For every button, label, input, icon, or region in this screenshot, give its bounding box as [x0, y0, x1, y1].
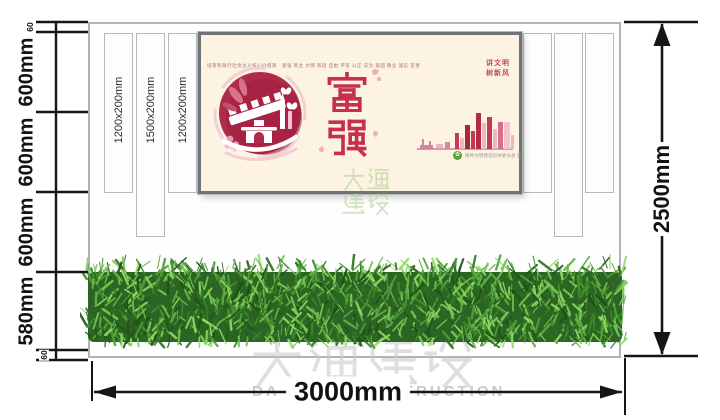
dim-label-580: 580mm	[16, 274, 39, 349]
city-skyline-graphic	[415, 101, 515, 153]
petal-accent-3	[318, 146, 325, 153]
dim-label-600-3: 600mm	[16, 195, 39, 270]
petal-accent-2	[377, 77, 382, 82]
credit-line: ✿ 精神文明建设指导委员会 宣	[453, 151, 521, 160]
strip-size-label-1: 1200x200mm	[113, 77, 125, 144]
credit-text: 精神文明建设指导委员会 宣	[465, 153, 521, 159]
slogan-line-1: 讲文明	[476, 59, 520, 69]
dim-label-height: 2500mm	[649, 142, 675, 236]
slogan-text: 讲文明 树新风	[476, 59, 520, 78]
dim-label-width: 3000mm	[286, 377, 410, 408]
dim-label-60-top: 60	[25, 21, 35, 32]
papercut-circle-illustration	[212, 65, 308, 161]
signage-design-drawing: { "annotations": { "left_chain": ["60", …	[0, 0, 720, 420]
poster-board: 培育和践行社会主义核心价值观 富强 民主 文明 和谐 自由 平等 公正 法治 爱…	[198, 32, 522, 194]
petal-accent-1	[371, 68, 379, 76]
green-emblem-icon: ✿	[453, 151, 462, 160]
wall-strip-right-2	[554, 33, 583, 237]
poster-main-characters	[327, 72, 367, 159]
strip-size-label-3: 1200x200mm	[177, 77, 189, 144]
dim-label-600-2: 600mm	[16, 115, 39, 190]
petal-accent-4	[372, 130, 379, 137]
strip-size-label-2: 1500x200mm	[145, 77, 157, 144]
dim-label-60-bottom: 60	[39, 349, 49, 360]
slogan-line-2: 树新风	[476, 69, 520, 79]
dim-label-600-1: 600mm	[16, 35, 39, 110]
wall-strip-right-3	[585, 33, 614, 193]
hedge-plants	[80, 254, 628, 366]
wall-strip-right-1	[523, 33, 552, 193]
